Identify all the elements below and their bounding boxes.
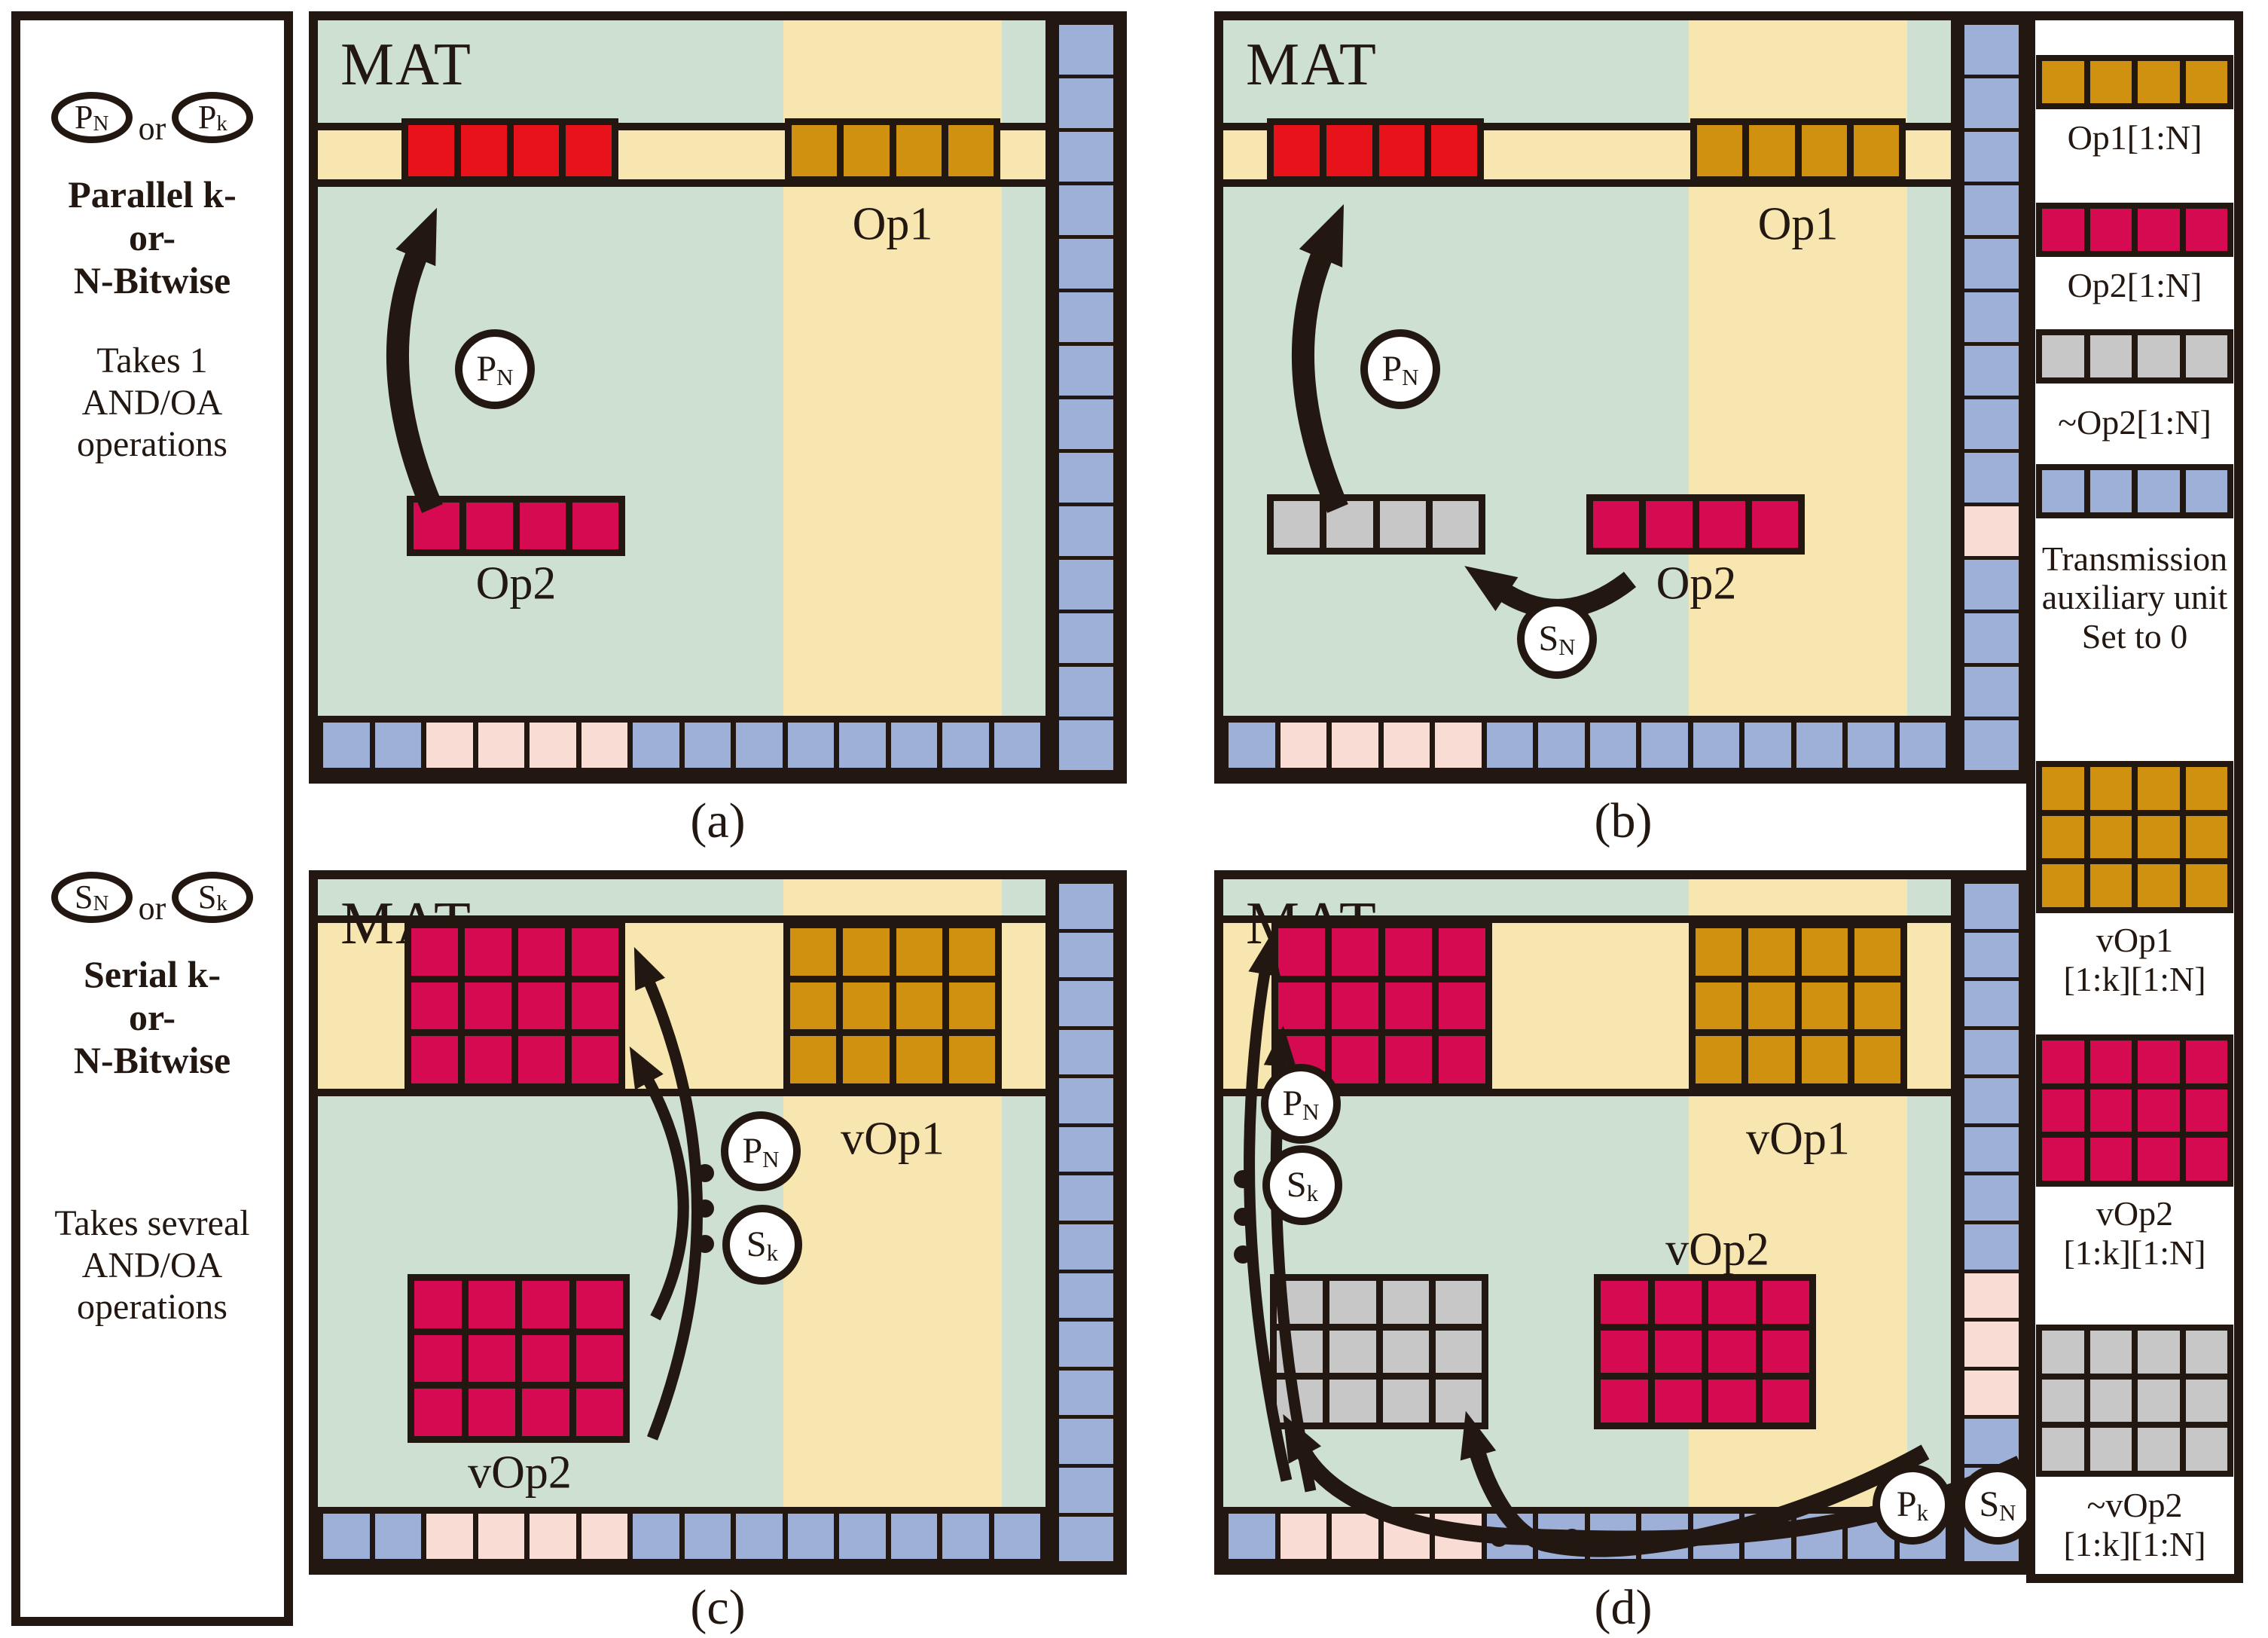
serial-title-line: N-Bitwise: [20, 1039, 284, 1082]
circle-subscript: N: [1302, 1100, 1319, 1123]
operand-cell-crimson: [2138, 1089, 2180, 1132]
legend-label-line: vOp2: [2035, 1194, 2234, 1233]
operand-cell-gray: [2138, 1380, 2180, 1423]
pn-circle: PN: [455, 329, 535, 409]
serial-title-line: Serial k-: [20, 953, 284, 996]
circle-letter: P: [1282, 1086, 1302, 1122]
operand-cell-orange: [2186, 864, 2228, 907]
circle-letter: P: [75, 101, 93, 134]
panel-c: MAT vOp1 vOp2 PN Sk: [309, 870, 1127, 1575]
operand-cell-crimson: [2090, 1138, 2132, 1181]
operand-cell-gray: [2138, 335, 2180, 377]
circle-subscript: k: [216, 893, 227, 915]
operand-cell-gray: [2186, 335, 2228, 377]
circle-subscript: N: [1999, 1501, 2016, 1524]
operand-cell-crimson: [2138, 1138, 2180, 1181]
operand-cell-gray: [2090, 1428, 2132, 1471]
circle-subscript: k: [1917, 1501, 1929, 1524]
operand-cell-orange: [2138, 816, 2180, 859]
operand-cell-crimson: [2042, 1138, 2084, 1181]
ellipsis-dot: [1490, 1529, 1508, 1547]
ellipsis-dot: [696, 1164, 714, 1182]
operand-cell-gray: [2090, 1331, 2132, 1374]
caption-d: (d): [1214, 1579, 2032, 1636]
legend-label-line: auxiliary unit: [2035, 578, 2234, 617]
operand-cell-gray: [2186, 1380, 2228, 1423]
operand-cell-gray: [2186, 1428, 2228, 1471]
circle-subscript: N: [93, 893, 108, 915]
operand-cell-gray: [2138, 1331, 2180, 1374]
legend-label-line: [1:k][1:N]: [2035, 960, 2234, 999]
operand-cell-orange: [2186, 767, 2228, 810]
legend-op1-block: [2036, 55, 2233, 109]
parallel-note-line: AND/OA: [20, 382, 284, 424]
operand-cell-crimson: [2186, 209, 2228, 251]
circle-subscript: N: [762, 1148, 779, 1171]
legend-label-line: [1:k][1:N]: [2035, 1233, 2234, 1273]
legend-label-line: ~vOp2: [2035, 1486, 2234, 1525]
legend-transmission-block: [2036, 464, 2233, 518]
operand-cell-blue: [2090, 470, 2132, 512]
operand-cell-crimson: [2042, 1041, 2084, 1083]
operand-cell-crimson: [2090, 209, 2132, 251]
serial-title-line: or-: [20, 996, 284, 1039]
pn-circle: PN: [721, 1111, 801, 1191]
circle-subscript: k: [1307, 1181, 1319, 1205]
operand-cell-orange: [2090, 864, 2132, 907]
legend-op1-label: Op1[1:N]: [2035, 118, 2234, 157]
operand-cell-orange: [2138, 864, 2180, 907]
circle-subscript: N: [1402, 365, 1418, 389]
serial-circles: SN or Sk: [20, 872, 284, 923]
pk-circle: Pk: [1873, 1465, 1952, 1545]
operand-cell-blue: [2042, 470, 2084, 512]
caption-a: (a): [309, 793, 1127, 850]
operand-cell-crimson: [2042, 209, 2084, 251]
operand-cell-gray: [2042, 1428, 2084, 1471]
panel-d: MAT vOp1 vOp2 PN Sk Pk SN: [1214, 870, 2032, 1575]
operand-cell-crimson: [2042, 1089, 2084, 1132]
operand-cell-orange: [2042, 864, 2084, 907]
parallel-title-line: or-: [20, 216, 284, 259]
operand-cell-crimson: [2186, 1041, 2228, 1083]
operand-cell-gray: [2042, 335, 2084, 377]
pn-circle: PN: [1360, 329, 1440, 409]
ellipsis-dot: [1234, 1245, 1252, 1264]
operand-cell-orange: [2042, 767, 2084, 810]
circle-letter: S: [746, 1227, 767, 1263]
operand-cell-orange: [2090, 767, 2132, 810]
operand-cell-orange: [2090, 61, 2132, 103]
operand-cell-gray: [2042, 1331, 2084, 1374]
serial-op-group: SN or Sk Serial k- or- N-Bitwise Takes s…: [20, 872, 284, 1328]
operand-cell-gray: [2042, 1380, 2084, 1423]
panel-a: MAT Op1 Op2 PN: [309, 11, 1127, 784]
sk-circle: Sk: [722, 1205, 802, 1285]
legend-label-line: Transmission: [2035, 539, 2234, 579]
operand-cell-orange: [2090, 816, 2132, 859]
color-legend-sidebar: Op1[1:N] Op2[1:N] ~Op2[1:N] Transmission…: [2026, 11, 2243, 1583]
circle-letter: P: [742, 1133, 762, 1169]
sn-ellipse: SN: [51, 872, 133, 923]
ellipsis-dot: [1563, 1529, 1581, 1547]
circle-letter: S: [198, 881, 216, 914]
ellipsis-dot: [696, 1235, 714, 1253]
circle-subscript: k: [767, 1241, 779, 1264]
operand-cell-crimson: [2138, 209, 2180, 251]
parallel-copy-arrow: [398, 250, 432, 509]
arrows-overlay-c: [318, 879, 1118, 1566]
operand-cell-orange: [2138, 767, 2180, 810]
operand-cell-crimson: [2186, 1089, 2228, 1132]
parallel-circles: PN or Pk: [20, 92, 284, 143]
operand-cell-orange: [2042, 61, 2084, 103]
circle-subscript: k: [216, 113, 227, 135]
circle-letter: P: [1897, 1487, 1917, 1523]
operand-cell-gray: [2090, 1380, 2132, 1423]
spacer: [20, 302, 284, 340]
serial-iteration-arrow-1: [648, 979, 697, 1438]
operand-cell-crimson: [2090, 1089, 2132, 1132]
caption-b: (b): [1214, 793, 2032, 850]
legend-not-vop2-label: ~vOp2 [1:k][1:N]: [2035, 1486, 2234, 1563]
circle-letter: P: [476, 351, 496, 387]
operand-cell-orange: [2186, 61, 2228, 103]
pn-circle: PN: [1261, 1064, 1341, 1144]
serial-note-line: Takes sevreal: [20, 1203, 284, 1245]
sn-circle: SN: [1517, 599, 1597, 679]
legend-label-line: Set to 0: [2035, 617, 2234, 656]
legend-vop2-label: vOp2 [1:k][1:N]: [2035, 1194, 2234, 1272]
pk-ellipse: Pk: [172, 92, 253, 143]
circle-subscript: N: [1558, 635, 1575, 659]
circle-subscript: N: [496, 365, 513, 389]
legend-not-vop2-block: [2036, 1325, 2233, 1477]
operand-cell-gray: [2090, 335, 2132, 377]
parallel-copy-arrow-b: [1303, 250, 1338, 509]
operand-cell-crimson: [2138, 1041, 2180, 1083]
circle-letter: S: [1287, 1167, 1307, 1203]
operand-cell-gray: [2186, 1331, 2228, 1374]
legend-vop1-label: vOp1 [1:k][1:N]: [2035, 921, 2234, 998]
operand-cell-blue: [2138, 470, 2180, 512]
ellipsis-dot: [1234, 1208, 1252, 1226]
operand-cell-orange: [2042, 816, 2084, 859]
legend-label-line: [1:k][1:N]: [2035, 1525, 2234, 1564]
legend-vop1-block: [2036, 761, 2233, 913]
ellipsis-dot: [1234, 1170, 1252, 1188]
operand-cell-gray: [2138, 1428, 2180, 1471]
circle-letter: P: [198, 101, 216, 134]
serial-note-line: operations: [20, 1286, 284, 1328]
or-text: or: [139, 889, 166, 927]
operand-cell-orange: [2186, 816, 2228, 859]
legend-not-op2-block: [2036, 329, 2233, 384]
serial-note-line: AND/OA: [20, 1245, 284, 1287]
arrows-overlay-d: [1223, 879, 2023, 1566]
legend-op2-label: Op2[1:N]: [2035, 266, 2234, 305]
ellipsis-dot: [696, 1199, 714, 1218]
operation-types-sidebar: PN or Pk Parallel k- or- N-Bitwise Takes…: [11, 11, 293, 1626]
circle-subscript: N: [93, 113, 108, 135]
caption-c: (c): [309, 1579, 1127, 1636]
arrows-overlay-a: [318, 20, 1118, 775]
spacer: [20, 1082, 284, 1203]
pn-ellipse: PN: [51, 92, 133, 143]
circle-letter: S: [1979, 1487, 1999, 1523]
operand-cell-crimson: [2186, 1138, 2228, 1181]
serial-iteration-arrow-2: [646, 1077, 683, 1318]
parallel-note-line: Takes 1: [20, 340, 284, 382]
ellipsis-dot: [1530, 1529, 1548, 1547]
legend-transmission-label: Transmission auxiliary unit Set to 0: [2035, 539, 2234, 656]
or-text: or: [139, 109, 166, 148]
operand-cell-crimson: [2090, 1041, 2132, 1083]
operand-cell-blue: [2186, 470, 2228, 512]
legend-label-line: vOp1: [2035, 921, 2234, 960]
parallel-title-line: N-Bitwise: [20, 259, 284, 302]
arrows-overlay-b: [1223, 20, 2023, 775]
circle-letter: S: [1538, 621, 1558, 657]
operand-cell-orange: [2138, 61, 2180, 103]
circle-letter: P: [1381, 351, 1402, 387]
panel-b: MAT Op1 Op2 PN SN: [1214, 11, 2032, 784]
parallel-note-line: operations: [20, 423, 284, 466]
circle-letter: S: [75, 881, 93, 914]
parallel-title-line: Parallel k-: [20, 173, 284, 216]
legend-vop2-block: [2036, 1034, 2233, 1187]
legend-op2-block: [2036, 203, 2233, 257]
sk-circle: Sk: [1262, 1145, 1342, 1225]
legend-not-op2-label: ~Op2[1:N]: [2035, 403, 2234, 442]
parallel-op-group: PN or Pk Parallel k- or- N-Bitwise Takes…: [20, 92, 284, 466]
sk-ellipse: Sk: [172, 872, 253, 923]
